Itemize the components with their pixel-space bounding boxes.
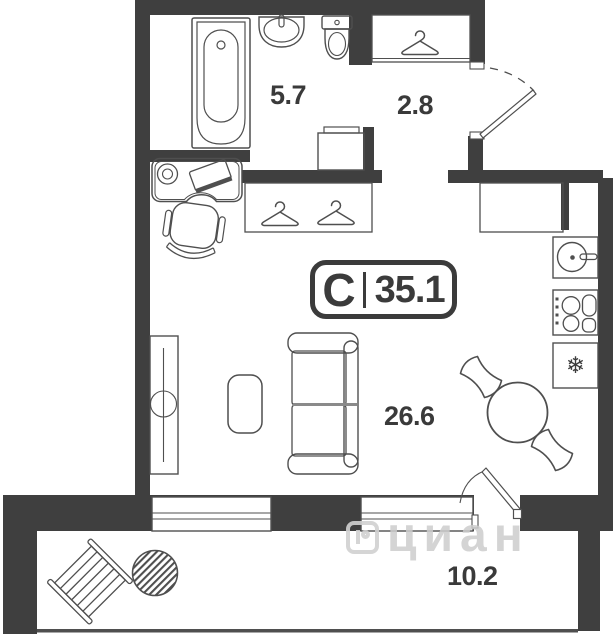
toilet [322, 16, 352, 59]
hanger-icon [318, 201, 354, 225]
wall-balcony-right [578, 531, 600, 631]
desk [152, 159, 242, 202]
wall-closet-top [242, 170, 382, 183]
desk-lamp [158, 164, 178, 184]
sofa [288, 333, 358, 474]
washing-machine [318, 127, 364, 170]
side-table [228, 375, 262, 433]
wall-balcony-left [3, 495, 37, 634]
hallway-area-label: 2.8 [397, 90, 433, 121]
wall-bath-bottom [148, 150, 250, 162]
hanger-icon [262, 202, 298, 226]
wall-entry-upper [470, 15, 485, 64]
office-chair [160, 200, 227, 262]
balcony-area-label: 10.2 [447, 561, 498, 592]
kitchen-sink [553, 237, 598, 278]
balcony-stool [133, 551, 178, 596]
laptop [189, 159, 232, 193]
drying-rack [47, 538, 133, 624]
floor-plan-drawing [0, 0, 613, 643]
bathroom-area-label: 5.7 [270, 80, 306, 111]
wall-top [135, 0, 485, 15]
walls [3, 0, 613, 634]
wall-kitchen-stub [561, 172, 569, 230]
bathtub [192, 18, 250, 148]
entry-closet [372, 15, 470, 62]
badge-divider [363, 272, 366, 308]
bathroom-sink [259, 15, 304, 47]
kitchen-counter [480, 183, 563, 232]
entrance-door [470, 62, 536, 139]
stove [553, 290, 598, 335]
balcony-railing [37, 629, 578, 633]
wardrobe-closet [245, 183, 372, 232]
window-right [361, 497, 473, 531]
wall-right [598, 178, 613, 498]
wardrobe-mirror [150, 336, 178, 474]
wall-left [135, 0, 150, 497]
total-area: 35.1 [375, 271, 445, 309]
hanger-icon [402, 31, 438, 55]
apartment-type: С [322, 267, 355, 313]
freezer-icon: ❄ [553, 343, 598, 388]
living-room-furniture [150, 333, 575, 474]
balcony-furniture [47, 538, 178, 624]
wall-kitchen-top [448, 170, 603, 183]
window-left [152, 497, 271, 531]
floor-plan: 5.7 2.8 26.6 10.2 С 35.1 ❄ циан [0, 0, 613, 643]
apartment-type-badge: С 35.1 [310, 260, 457, 319]
living-room-area-label: 26.6 [384, 401, 435, 432]
desk-area [152, 159, 242, 263]
